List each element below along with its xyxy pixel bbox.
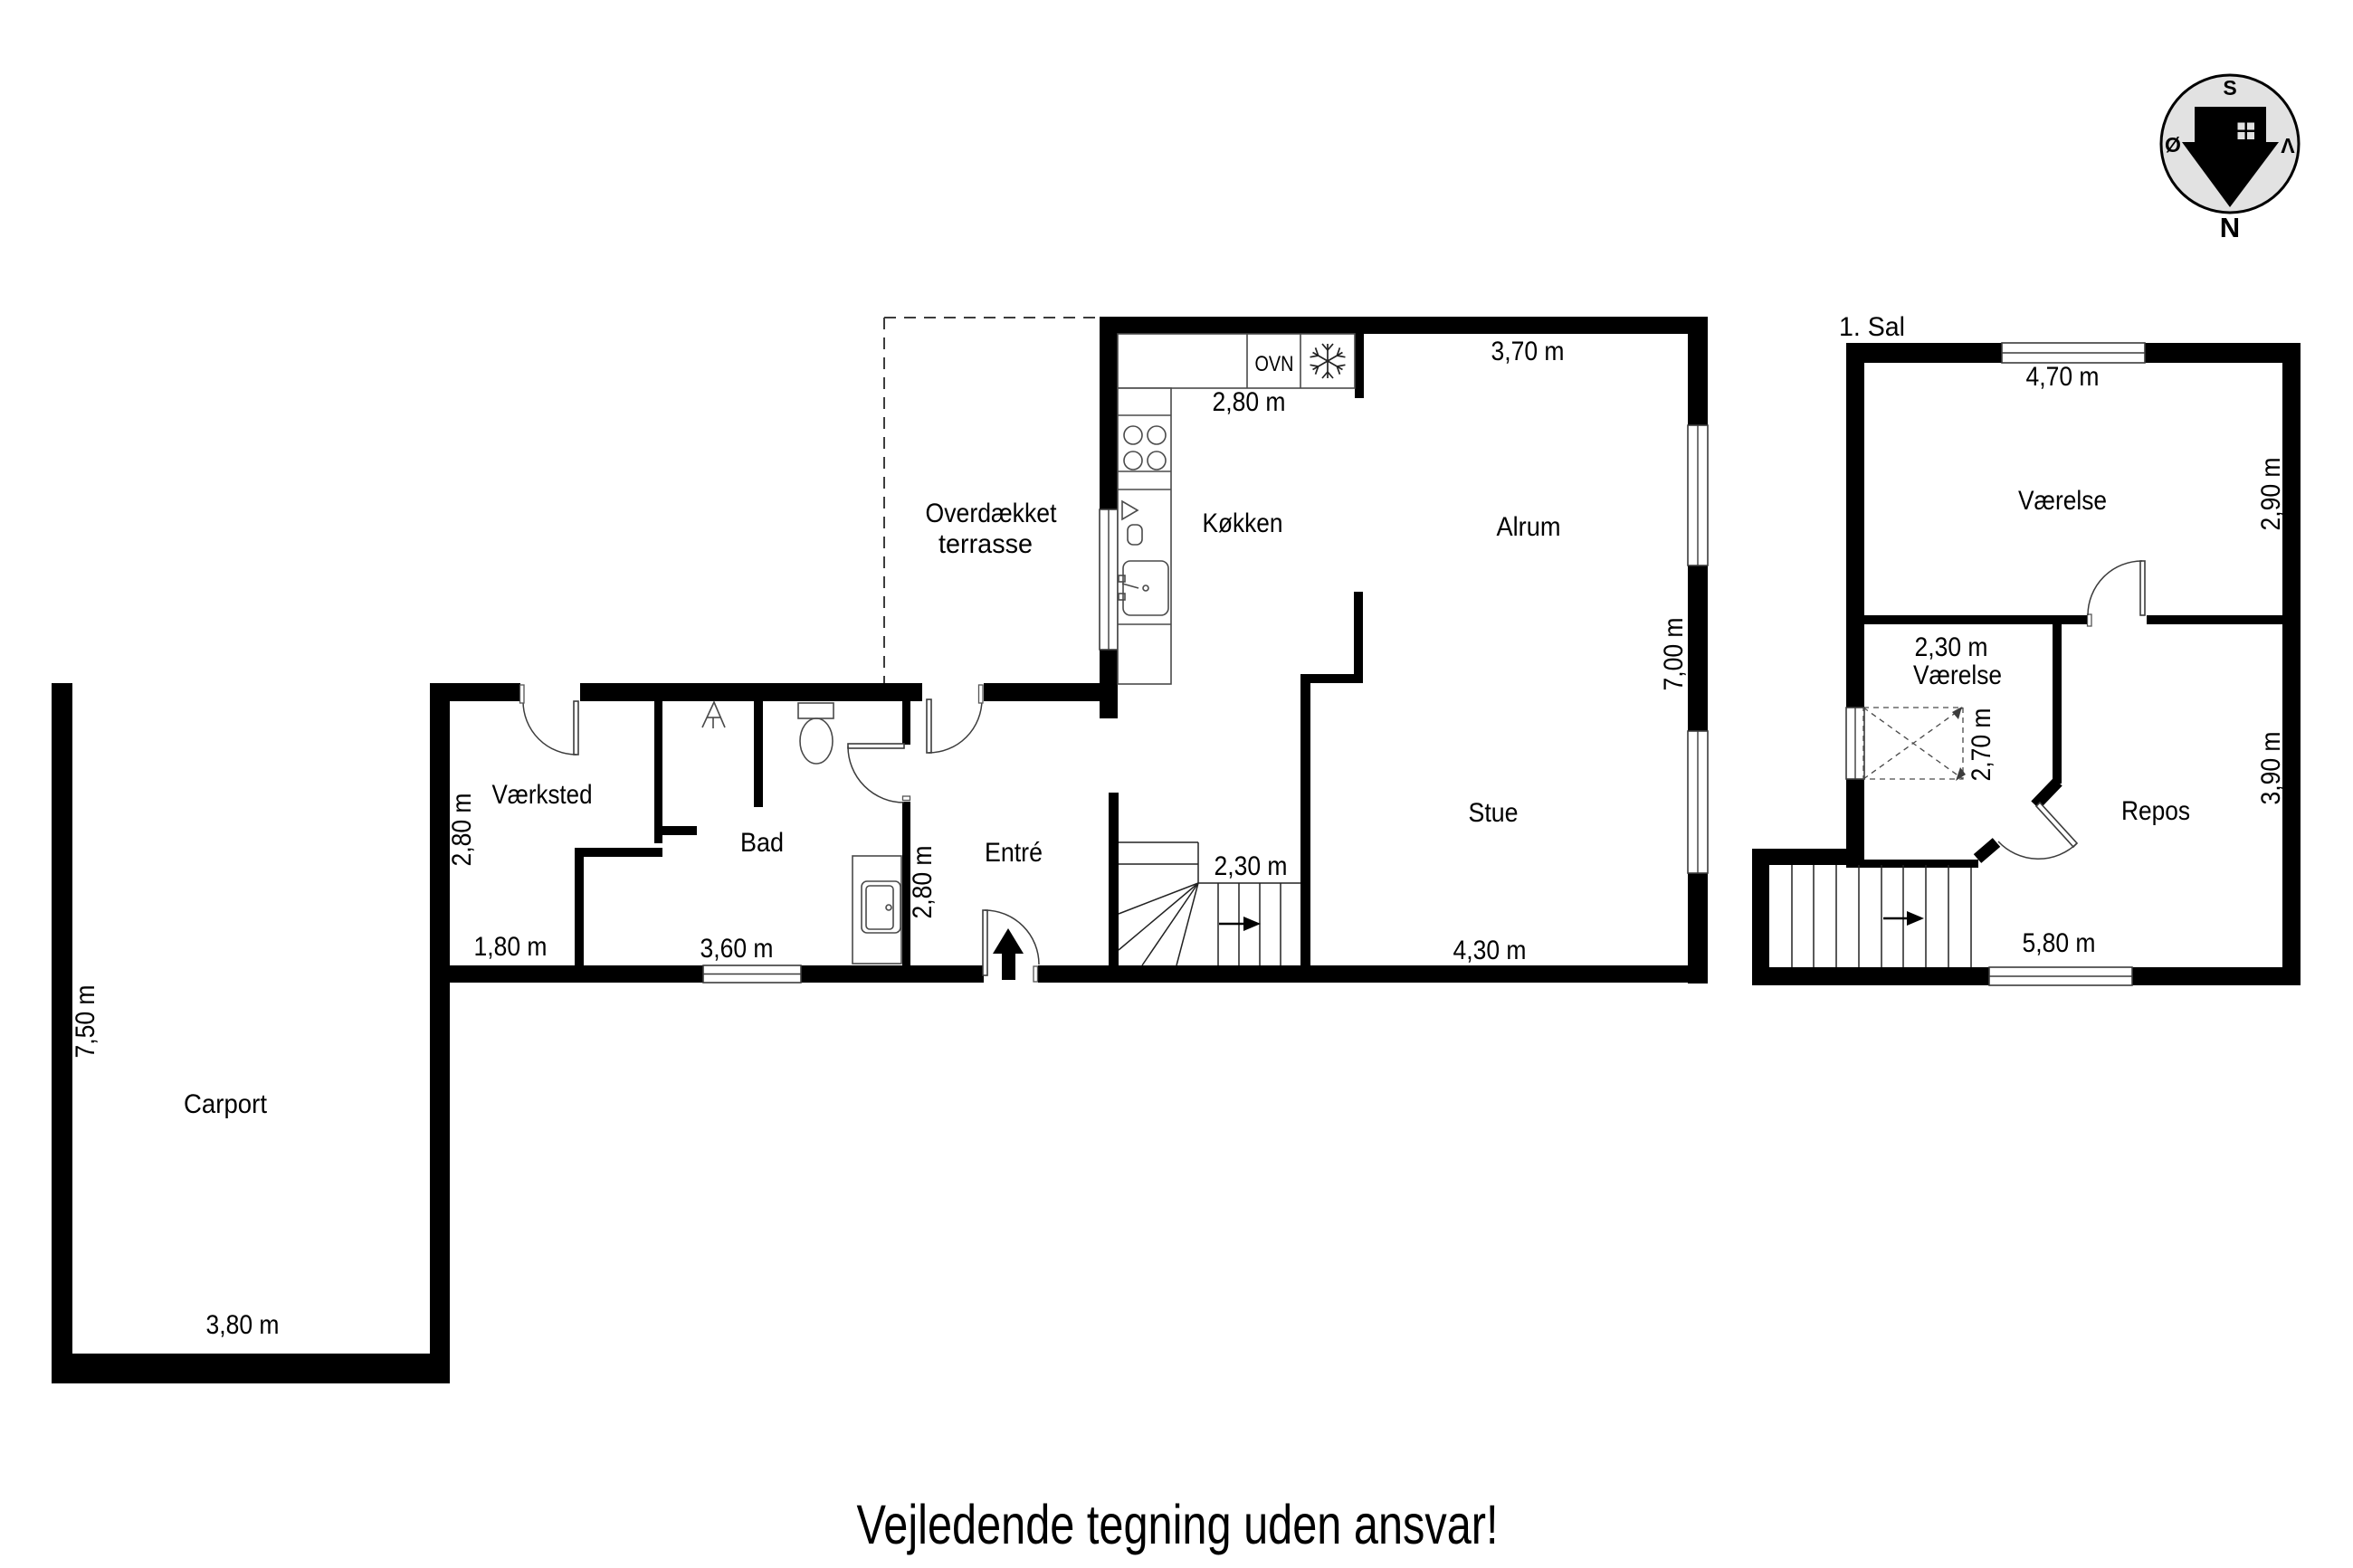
svg-text:2,90 m: 2,90 m bbox=[2256, 458, 2286, 531]
svg-text:3,90 m: 3,90 m bbox=[2256, 732, 2286, 805]
svg-text:Repos: Repos bbox=[2121, 796, 2190, 826]
svg-text:2,70 m: 2,70 m bbox=[1967, 708, 1996, 782]
svg-text:Værksted: Værksted bbox=[492, 780, 593, 810]
svg-text:Carport: Carport bbox=[184, 1089, 268, 1119]
svg-text:1,80 m: 1,80 m bbox=[474, 932, 548, 962]
svg-text:5,80 m: 5,80 m bbox=[2023, 928, 2096, 958]
svg-text:Stue: Stue bbox=[1469, 798, 1519, 828]
svg-text:terrasse: terrasse bbox=[938, 529, 1033, 559]
svg-text:Entré: Entré bbox=[985, 838, 1043, 868]
svg-text:Bad: Bad bbox=[740, 828, 784, 858]
svg-text:7,50 m: 7,50 m bbox=[71, 985, 100, 1059]
svg-text:2,30 m: 2,30 m bbox=[1915, 632, 1988, 662]
svg-text:3,70 m: 3,70 m bbox=[1491, 337, 1565, 366]
svg-text:Alrum: Alrum bbox=[1497, 512, 1561, 542]
svg-text:Værelse: Værelse bbox=[2018, 486, 2107, 516]
svg-text:V: V bbox=[2281, 134, 2295, 157]
svg-text:OVN: OVN bbox=[1255, 352, 1294, 376]
svg-text:2,30 m: 2,30 m bbox=[1215, 851, 1288, 881]
svg-text:4,30 m: 4,30 m bbox=[1453, 936, 1527, 965]
svg-text:1. Sal: 1. Sal bbox=[1839, 312, 1905, 342]
svg-text:2,80 m: 2,80 m bbox=[908, 846, 938, 919]
svg-text:2,80 m: 2,80 m bbox=[447, 794, 477, 867]
svg-text:Vejledende tegning uden ansvar: Vejledende tegning uden ansvar! bbox=[857, 1494, 1499, 1555]
svg-text:4,70 m: 4,70 m bbox=[2026, 362, 2100, 392]
svg-text:3,80 m: 3,80 m bbox=[206, 1310, 280, 1340]
svg-text:S: S bbox=[2223, 76, 2236, 100]
svg-text:7,00 m: 7,00 m bbox=[1659, 618, 1689, 691]
svg-text:2,80 m: 2,80 m bbox=[1213, 387, 1286, 417]
svg-text:Ø: Ø bbox=[2165, 133, 2181, 157]
svg-text:N: N bbox=[2220, 212, 2240, 243]
svg-text:3,60 m: 3,60 m bbox=[700, 934, 774, 964]
svg-text:Overdækket: Overdækket bbox=[926, 499, 1058, 528]
svg-text:Køkken: Køkken bbox=[1203, 508, 1283, 538]
svg-text:Værelse: Værelse bbox=[1913, 660, 2002, 690]
